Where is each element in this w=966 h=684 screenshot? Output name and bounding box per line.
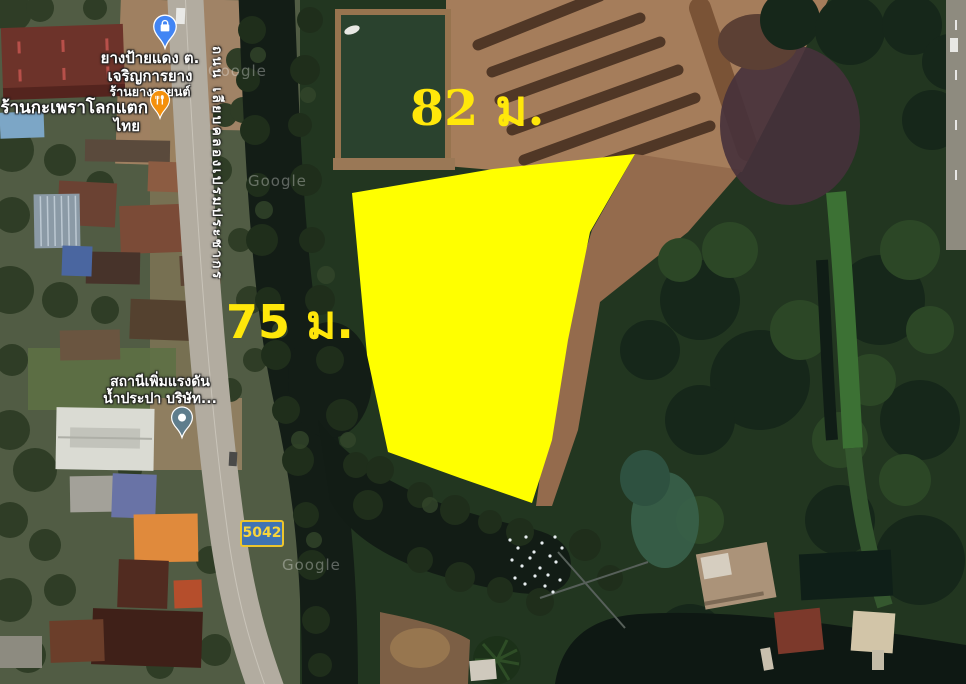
- poi-label-restaurant[interactable]: ร้านกะเพราโลกแตก ไทย: [0, 98, 148, 136]
- poi-restaurant-line2: ไทย: [0, 118, 148, 136]
- restaurant-pin-icon[interactable]: [149, 89, 171, 121]
- parcel-width-label: 82 ม.: [410, 84, 545, 133]
- road-name-label: ถนน เลียบคลองเปรมประชากร: [207, 46, 229, 281]
- place-pin-icon[interactable]: [170, 406, 194, 440]
- poi-label-water-station[interactable]: สถานีเพิ่มแรงดัน น้ำประปา บริษัท...: [78, 374, 242, 407]
- poi-water-station-line2: น้ำประปา บริษัท...: [78, 391, 242, 408]
- poi-tire-shop-line1: ยางป้ายแดง ต.: [70, 50, 230, 68]
- shopping-pin-icon[interactable]: [152, 14, 178, 51]
- poi-tire-shop-line2: เจริญการยาง: [70, 68, 230, 86]
- route-shield-5042: 5042: [240, 520, 284, 547]
- google-watermark: Google: [282, 556, 341, 574]
- parcel-depth-label: 75 ม.: [226, 299, 354, 345]
- map-viewport[interactable]: Google Google Google ยางป้ายแดง ต. เจริญ…: [0, 0, 966, 684]
- poi-water-station-line1: สถานีเพิ่มแรงดัน: [78, 374, 242, 391]
- poi-restaurant-line1: ร้านกะเพราโลกแตก: [0, 98, 148, 118]
- google-watermark: Google: [248, 172, 307, 190]
